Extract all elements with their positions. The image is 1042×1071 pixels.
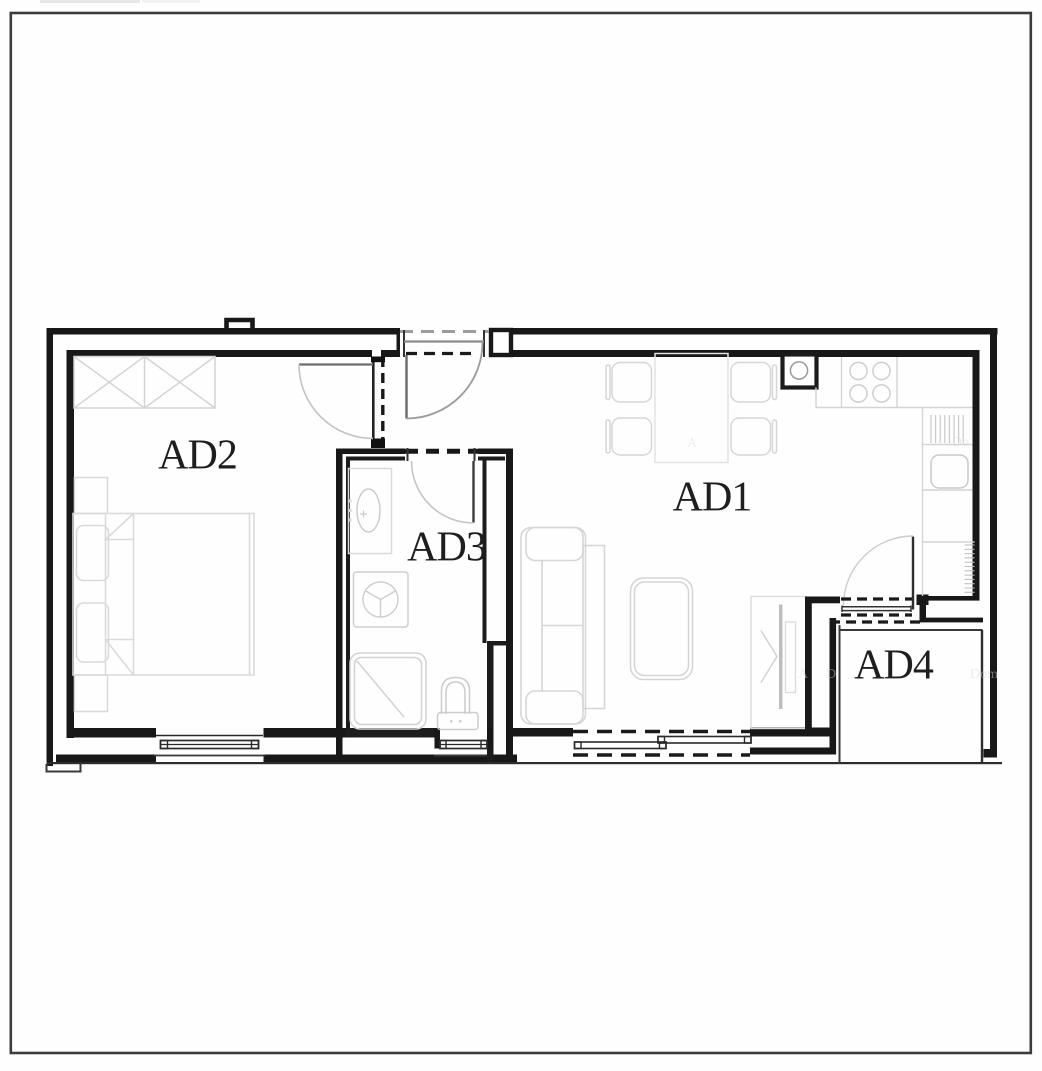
svg-text:A: A (798, 667, 809, 682)
svg-text:AD1: AD1 (673, 475, 752, 521)
svg-text:Dom: Dom (970, 667, 998, 682)
svg-text:AD3: AD3 (407, 525, 486, 571)
svg-text:D: D (826, 667, 836, 682)
svg-text:AD4: AD4 (854, 643, 934, 689)
svg-text:A: A (687, 436, 698, 451)
svg-text:Do: Do (952, 435, 969, 450)
svg-text:AD2: AD2 (158, 433, 237, 479)
